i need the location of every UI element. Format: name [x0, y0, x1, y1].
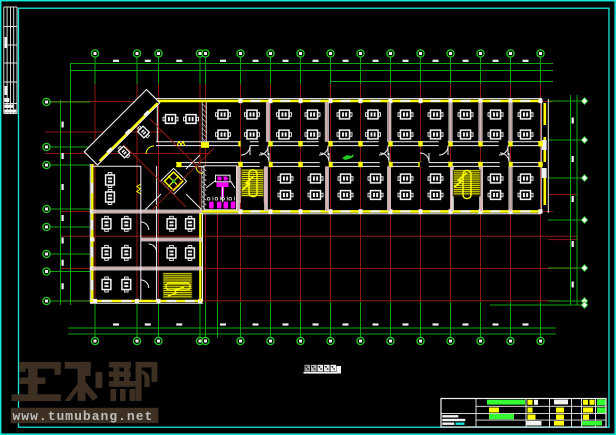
svg-text:www.tumubang.net: www.tumubang.net	[13, 409, 154, 424]
